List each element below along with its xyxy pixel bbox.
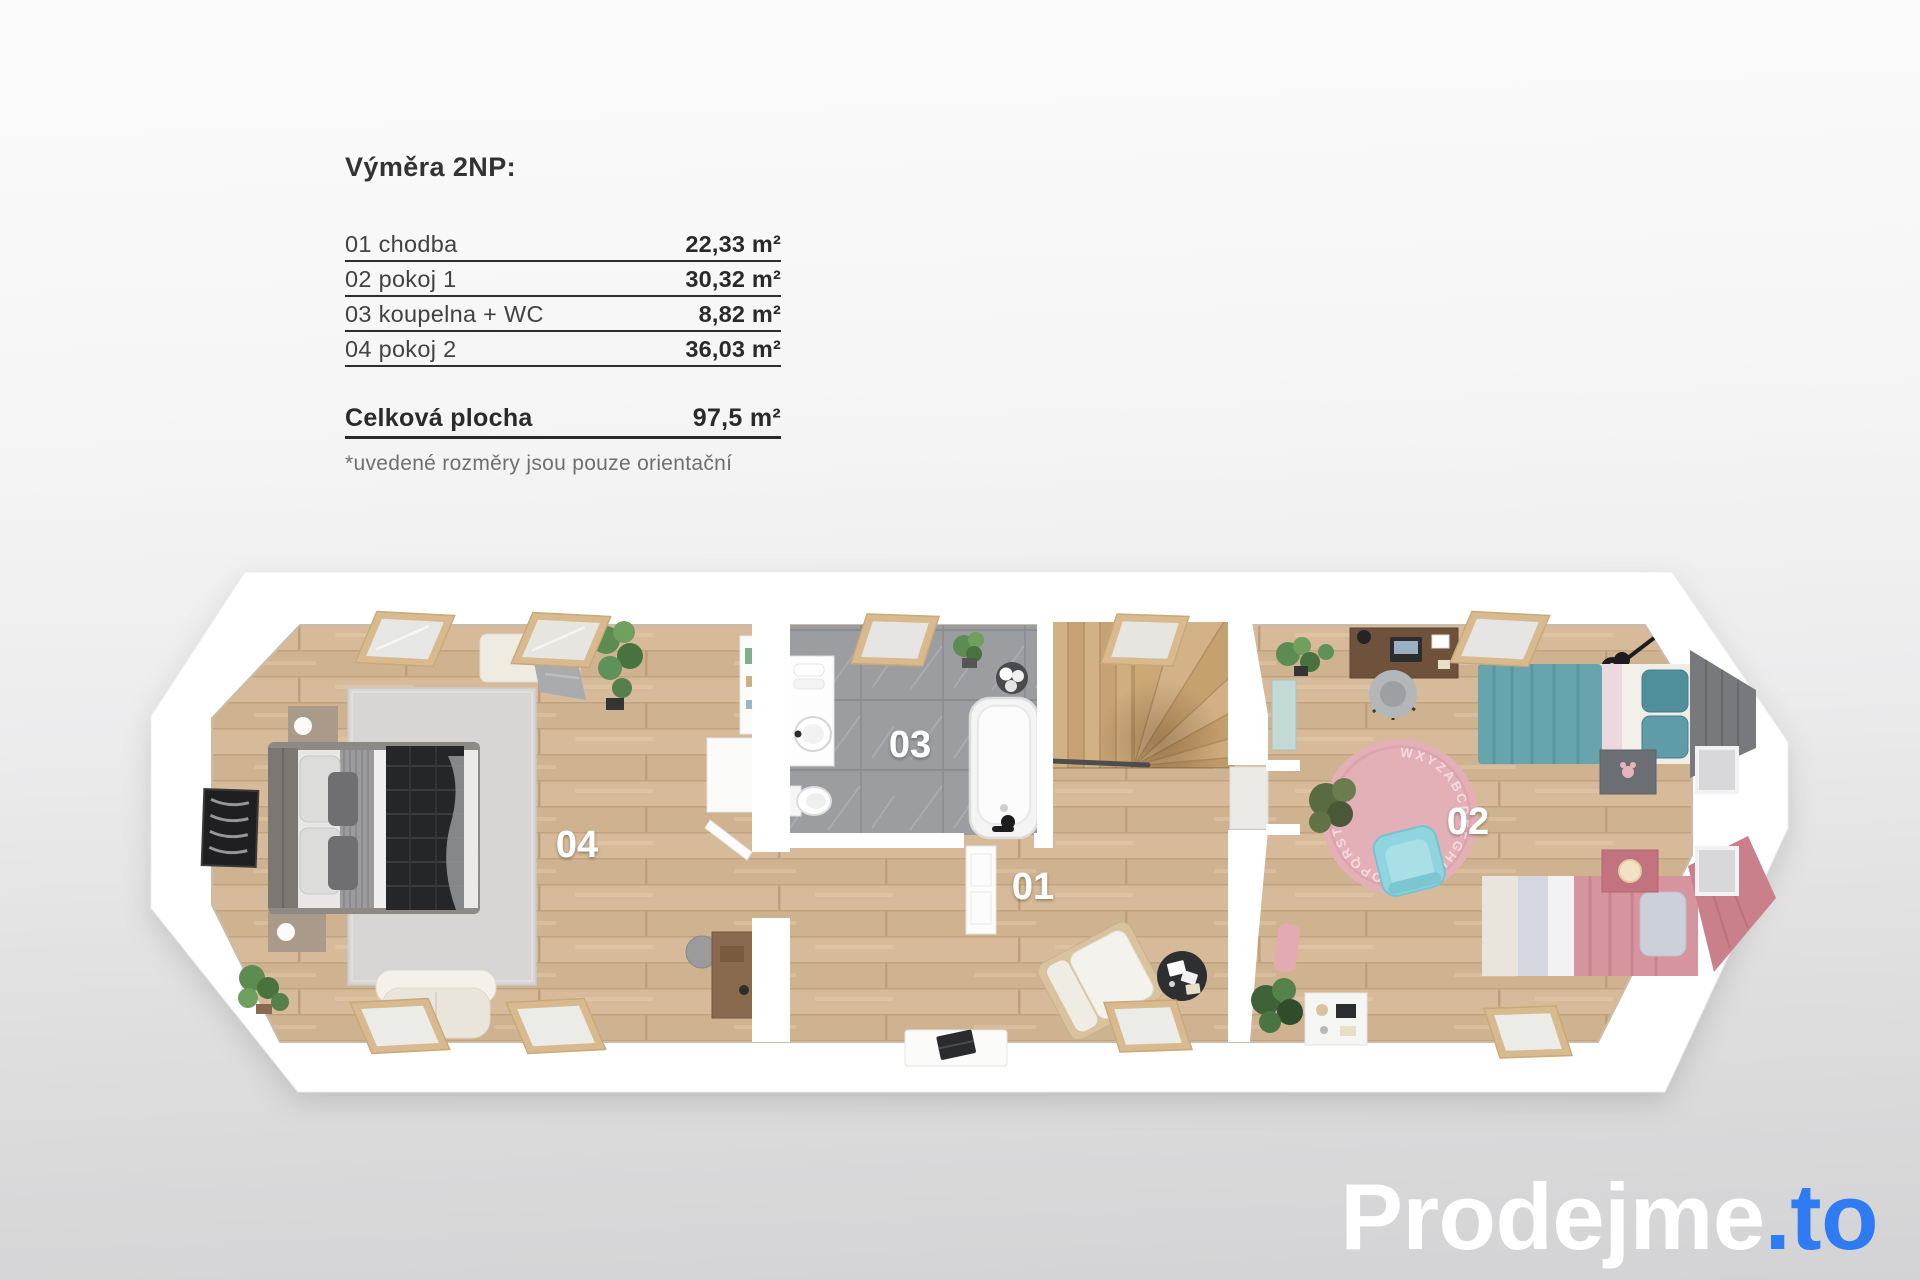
floorplan-figure: WXYZABCDEFGHIJKLMNOPQRSTUV	[0, 0, 1920, 1280]
door-sill-room02	[1230, 767, 1268, 829]
pillow	[328, 772, 358, 826]
brand-name: Prodejme	[1340, 1164, 1764, 1269]
skylight-icon	[1104, 1000, 1192, 1052]
room-number-01: 01	[1012, 866, 1054, 908]
room-number-02: 02	[1447, 801, 1489, 843]
skylight-icon	[1484, 1006, 1572, 1058]
room-number-04: 04	[556, 824, 598, 866]
skylight-icon	[851, 614, 939, 666]
gable-window	[1697, 748, 1737, 792]
nightstand	[268, 912, 326, 952]
pillow	[1642, 670, 1688, 712]
page-background: Výměra 2NP: 01 chodba 22,33 m² 02 pokoj …	[0, 0, 1920, 1280]
brand-tld: .to	[1765, 1164, 1878, 1269]
teal-cabinet	[1272, 680, 1296, 750]
bathtub	[970, 698, 1038, 838]
pillow	[1640, 892, 1686, 956]
lamp	[277, 923, 295, 941]
towel-basket	[996, 662, 1028, 694]
nightstand-pink	[1602, 850, 1658, 892]
desk	[1350, 628, 1458, 678]
double-bed	[268, 742, 480, 914]
pillow	[328, 836, 358, 890]
lamp	[294, 717, 312, 735]
toilet	[788, 786, 831, 816]
gable-window	[1697, 848, 1737, 894]
bench-with-laptop	[905, 1029, 1007, 1066]
skylight-icon	[1101, 614, 1189, 666]
coffee-table	[1157, 951, 1207, 1001]
door-leaf-bathroom	[966, 846, 996, 934]
tv-screen	[202, 789, 259, 867]
lamp	[1619, 860, 1641, 882]
dresser	[707, 738, 753, 812]
brand-logo: Prodejme.to	[1340, 1170, 1878, 1264]
room-number-03: 03	[889, 724, 931, 766]
white-desk	[1305, 993, 1367, 1045]
nightstand-gray	[1600, 750, 1656, 794]
